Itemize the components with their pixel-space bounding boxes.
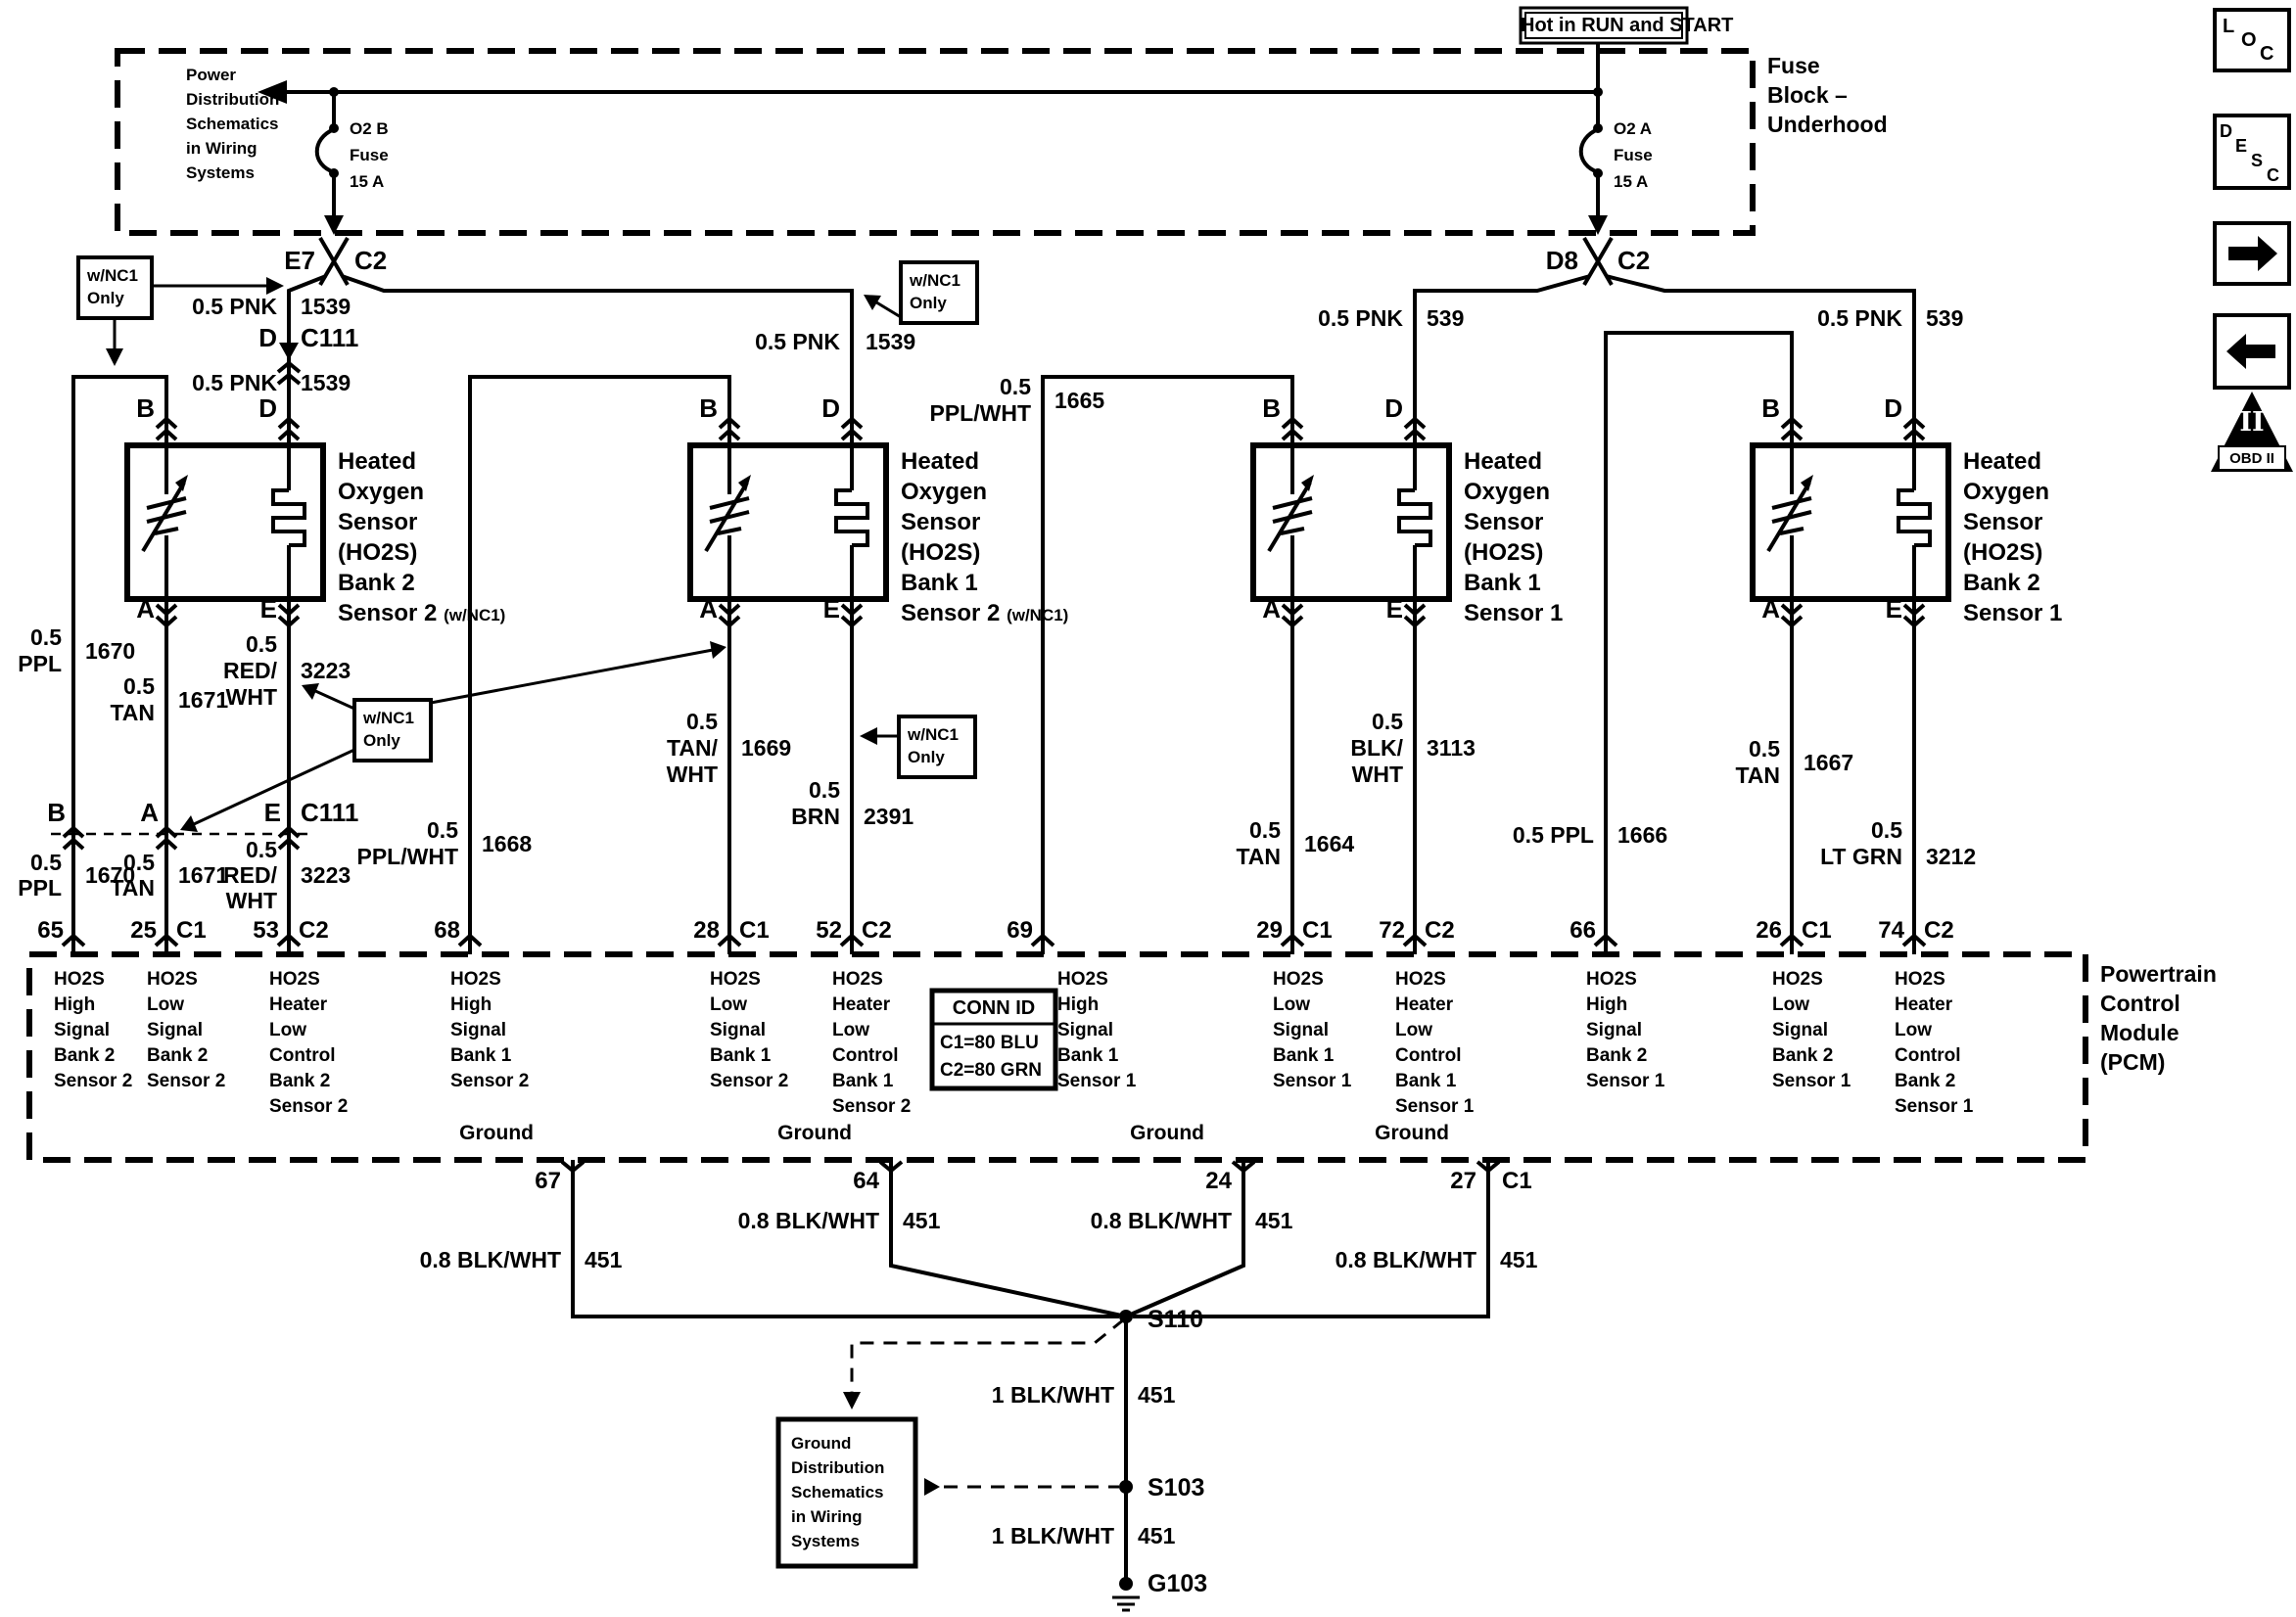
splice-s110-label: S110 [1148, 1306, 1203, 1333]
wire-feed-a-circuit-1: 1539 [301, 294, 351, 320]
splice-s103-label: S103 [1148, 1474, 1204, 1501]
sensor-title-last: Sensor 2 [901, 600, 1000, 626]
c111-feed-conn: C111 [301, 324, 358, 351]
pcm-pin-67: 67 [414, 1169, 561, 1194]
pcm-ground-label-2: Ground [705, 1122, 852, 1145]
fuse-block-title: FuseBlock –Underhood [1767, 51, 1888, 139]
terminal-a: A [37, 595, 155, 623]
sensor-title-last: Sensor 1 [1464, 600, 1563, 626]
wire-d-b-label: 0.5 PPL [1447, 822, 1594, 849]
desc-letter-e: E [2235, 136, 2247, 156]
sensor-box-bank1-sensor2 [690, 445, 886, 599]
ground-symbol [1112, 1597, 1140, 1610]
hot-label: Hot in RUN and START [1521, 8, 1687, 43]
wire-gnd24-circuit: 451 [1255, 1208, 1292, 1234]
pcm-pin-68: 68 [313, 918, 460, 944]
wire-c-e-label: 0.5BLK/WHT [1256, 709, 1403, 788]
wire-gnd67-label: 0.8 BLK/WHT [346, 1247, 561, 1273]
pcm-pin-27-conn: C1 [1502, 1169, 1532, 1194]
wire-b-a-label: 0.5TAN/WHT [571, 709, 718, 788]
fuse-right-symbol [1581, 129, 1598, 172]
sensor-box-bank2-sensor1 [1753, 445, 1948, 599]
terminal-b: B [37, 394, 155, 422]
sensor-box-bank2-sensor2 [127, 445, 323, 599]
wire-feed-b-label: 0.5 PNK [625, 329, 840, 355]
sensor-title-bank2-sensor2: HeatedOxygenSensor(HO2S)Bank 2 Sensor 2 … [338, 446, 505, 630]
conn-id-rows: C1=80 BLUC2=80 GRN [940, 1030, 1042, 1085]
terminal-d: D [1286, 394, 1403, 422]
wire-s110-label: 1 BLK/WHT [899, 1382, 1114, 1409]
wire-feed-a-label-2: 0.5 PNK [62, 370, 277, 396]
breakout-e7-conn: C2 [354, 247, 387, 274]
wire-a-e-label-2: 0.5RED/WHT [130, 837, 277, 913]
loc-letter-c: C [2260, 44, 2273, 64]
next-button[interactable] [2215, 223, 2289, 284]
pcm-pin-69: 69 [886, 918, 1033, 944]
wire-b-e-circuit: 2391 [864, 804, 914, 830]
conn-id-title: CONN ID [932, 994, 1055, 1022]
terminal-b: B [1663, 394, 1780, 422]
wire-feed-d-circuit: 539 [1926, 305, 1963, 332]
pcm-fn-11: HO2SLowSignalBank 2Sensor 1 [1772, 967, 1851, 1094]
wire-d-e-circuit: 3212 [1926, 844, 1976, 870]
fuse-left-symbol [317, 129, 334, 172]
splice-s103-dot [1119, 1480, 1133, 1494]
sensor-title-bank2-sensor1: HeatedOxygenSensor(HO2S)Bank 2 Sensor 1 [1963, 446, 2062, 628]
terminal-d: D [160, 394, 277, 422]
wire-c-b-label: 0.5PPL/WHT [884, 374, 1031, 427]
terminal-d: D [723, 394, 840, 422]
terminal-a: A [1163, 595, 1281, 623]
pcm-ground-label-1: Ground [387, 1122, 534, 1145]
wire-a-b-circuit: 1670 [85, 638, 135, 665]
terminal-e: E [160, 595, 277, 623]
desc-letter-d: D [2220, 121, 2232, 141]
wire-d-a-label: 0.5TAN [1633, 736, 1780, 789]
wire-b-e-label: 0.5BRN [693, 777, 840, 830]
terminal-b: B [1163, 394, 1281, 422]
pcm-fn-4: HO2SHighSignalBank 1Sensor 2 [450, 967, 529, 1094]
pcm-pin-53: 53 [132, 918, 279, 944]
wire-c-a-label: 0.5TAN [1134, 817, 1281, 870]
c111-feed-pin: D [160, 324, 277, 351]
wire-gnd64-circuit: 451 [903, 1208, 940, 1234]
terminal-e: E [1286, 595, 1403, 623]
pcm-fn-8: HO2SLowSignalBank 1Sensor 1 [1273, 967, 1351, 1094]
breakout-d8-pin: D8 [1480, 247, 1578, 274]
sensor-title-bank1-sensor2: HeatedOxygenSensor(HO2S)Bank 1 Sensor 2 … [901, 446, 1068, 630]
terminal-e: E [1785, 595, 1902, 623]
c111-pin-e: E [164, 799, 281, 826]
pcm-fn-7: HO2SHighSignalBank 1Sensor 1 [1057, 967, 1136, 1094]
sensor-title-suffix: (w/NC1) [1007, 606, 1068, 624]
pcm-fn-2: HO2SLowSignalBank 2Sensor 2 [147, 967, 225, 1094]
wire-c-a-circuit: 1664 [1304, 831, 1354, 857]
wire-d-b-circuit: 1666 [1617, 822, 1667, 849]
wire-b-b-label: 0.5PPL/WHT [311, 817, 458, 870]
power-note: PowerDistributionSchematicsin WiringSyst… [186, 63, 279, 185]
wire-b-b-circuit: 1668 [482, 831, 532, 857]
desc-letter-s: S [2251, 151, 2263, 170]
arrow-right-icon [2228, 236, 2277, 271]
wire-feed-b-circuit: 1539 [866, 329, 915, 355]
desc-letter-c: C [2267, 165, 2279, 185]
pcm-fn-10: HO2SHighSignalBank 2Sensor 1 [1586, 967, 1664, 1094]
terminal-chevrons-top [157, 419, 1924, 439]
fuse-right-label: O2 AFuse15 A [1614, 115, 1653, 195]
sensor-title-suffix: (w/NC1) [444, 606, 505, 624]
loc-letter-o: O [2241, 30, 2257, 50]
pcm-fn-3: HO2SHeaterLowControlBank 2Sensor 2 [269, 967, 348, 1120]
wire-gnd64-label: 0.8 BLK/WHT [664, 1208, 879, 1234]
wire-gnd24-label: 0.8 BLK/WHT [1016, 1208, 1232, 1234]
pcm-fn-9: HO2SHeaterLowControlBank 1Sensor 1 [1395, 967, 1474, 1120]
ground-g103-label: G103 [1148, 1570, 1207, 1597]
sensor-title-last: Sensor 1 [1963, 600, 2062, 626]
terminal-d: D [1785, 394, 1902, 422]
obd2-label: OBD II [2219, 448, 2285, 469]
ground-note: GroundDistributionSchematicsin WiringSys… [791, 1431, 884, 1553]
sensor-title-bank1-sensor1: HeatedOxygenSensor(HO2S)Bank 1 Sensor 1 [1464, 446, 1563, 628]
nc1-note-3: w/NC1Only [363, 707, 414, 752]
wire-s110-circuit: 451 [1138, 1382, 1175, 1409]
pcm-pin-74: 74 [1757, 918, 1904, 944]
obd2-numeral: II [2235, 409, 2269, 436]
wire-feed-d-label: 0.5 PNK [1687, 305, 1902, 332]
wire-a-e-circuit: 3223 [301, 658, 351, 684]
fuse-left-label: O2 BFuse15 A [350, 115, 389, 195]
wire-c-b-circuit: 1665 [1054, 388, 1104, 414]
wire-a-e-label: 0.5RED/WHT [130, 631, 277, 711]
arrow-left-icon [2226, 334, 2275, 369]
wiring-diagram: Hot in RUN and START FuseBlock –Underhoo… [0, 0, 2296, 1617]
terminal-b: B [600, 394, 718, 422]
wire-d-a-circuit: 1667 [1804, 750, 1853, 776]
terminal-a: A [1663, 595, 1780, 623]
pcm-pin-64: 64 [732, 1169, 879, 1194]
power-feed-wires [258, 43, 1608, 235]
wire-d-e-label: 0.5LT GRN [1756, 817, 1902, 870]
wire-feed-c-label: 0.5 PNK [1188, 305, 1403, 332]
wire-gnd27-label: 0.8 BLK/WHT [1261, 1247, 1476, 1273]
sensor-title-last: Sensor 2 [338, 600, 437, 626]
wire-b-a-circuit: 1669 [741, 735, 791, 762]
pcm-title: PowertrainControlModule(PCM) [2100, 959, 2217, 1077]
wire-gnd27-circuit: 451 [1500, 1247, 1537, 1273]
pcm-fn-5: HO2SLowSignalBank 1Sensor 2 [710, 967, 788, 1094]
pcm-ground-label-4: Ground [1302, 1122, 1449, 1145]
wire-feed-a-label-1: 0.5 PNK [62, 294, 277, 320]
sensor-box-bank1-sensor1 [1253, 445, 1449, 599]
pcm-pin-27: 27 [1330, 1169, 1476, 1194]
pcm-fn-12: HO2SHeaterLowControlBank 2Sensor 1 [1895, 967, 1973, 1120]
wire-a-b-label: 0.5PPL [0, 624, 62, 677]
pcm-ground-label-3: Ground [1057, 1122, 1204, 1145]
wire-feed-c-circuit: 539 [1427, 305, 1464, 332]
wire-s103-circuit: 451 [1138, 1523, 1175, 1549]
pcm-pin-72: 72 [1258, 918, 1405, 944]
breakout-d8-conn: C2 [1617, 247, 1650, 274]
prev-button[interactable] [2215, 315, 2289, 388]
c111-pin-a: A [41, 799, 159, 826]
pcm-pin-66: 66 [1449, 918, 1596, 944]
terminal-e: E [723, 595, 840, 623]
pcm-fn-1: HO2SHighSignalBank 2Sensor 2 [54, 967, 132, 1094]
pcm-pin-24: 24 [1085, 1169, 1232, 1194]
pcm-fn-6: HO2SHeaterLowControlBank 1Sensor 2 [832, 967, 911, 1120]
wire-s103-label: 1 BLK/WHT [899, 1523, 1114, 1549]
nc1-note-2: w/NC1Only [910, 269, 961, 314]
pcm-pin-52: 52 [695, 918, 842, 944]
wire-c-e-circuit: 3113 [1427, 735, 1476, 762]
pcm-pin-74-conn: C2 [1924, 918, 1954, 944]
terminal-a: A [600, 595, 718, 623]
wire-gnd67-circuit: 451 [585, 1247, 622, 1273]
loc-letter-l: L [2223, 17, 2234, 36]
ground-g103-dot [1119, 1577, 1133, 1591]
wire-feed-a-circuit-2: 1539 [301, 370, 351, 396]
breakout-e7-pin: E7 [217, 247, 315, 274]
nc1-note-4: w/NC1Only [908, 723, 959, 768]
